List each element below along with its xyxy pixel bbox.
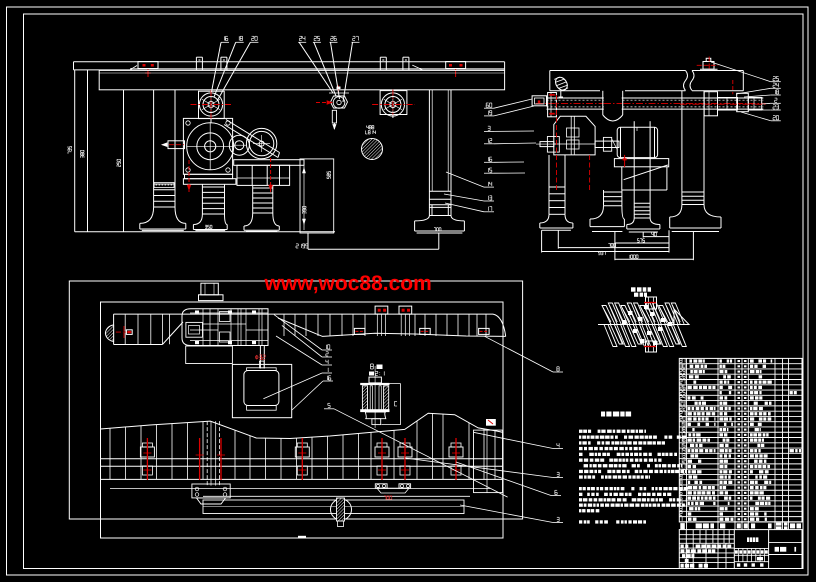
- svg-text:www,woc88.com: www,woc88.com: [264, 272, 432, 295]
